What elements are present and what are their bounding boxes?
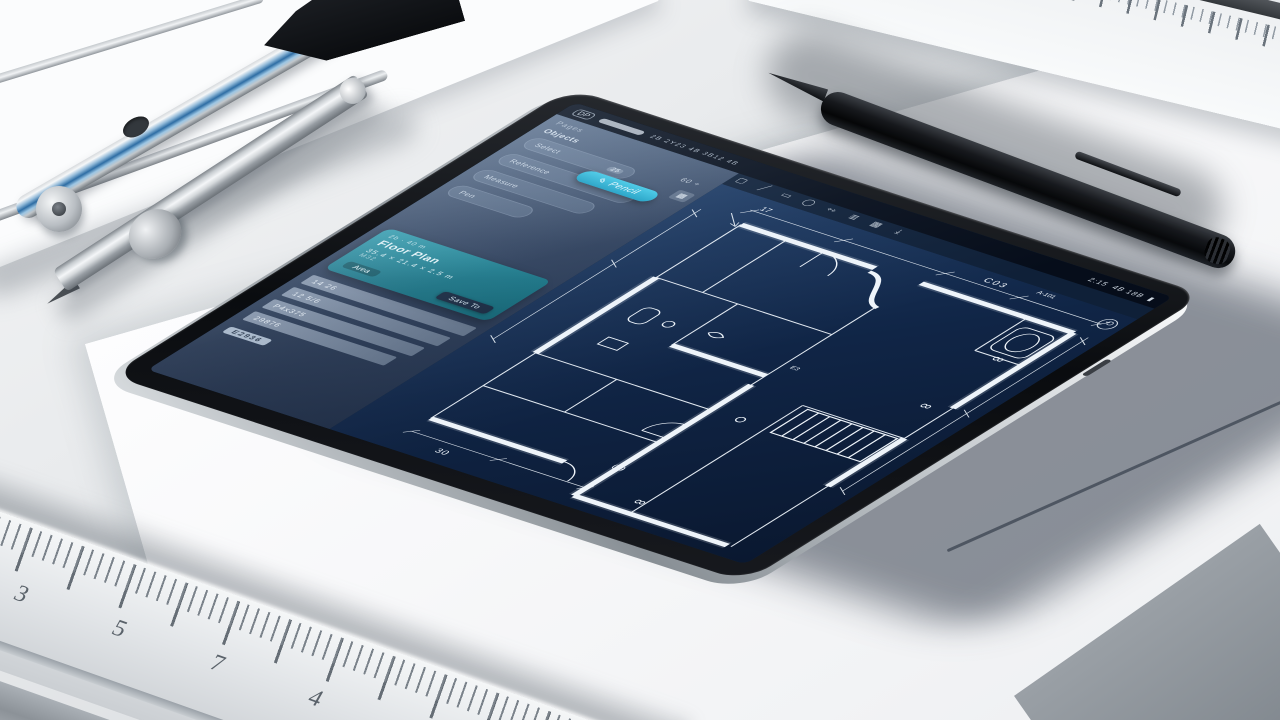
footer-chip[interactable]: E2936 [222, 326, 273, 345]
circle-icon[interactable]: ◯ [798, 198, 819, 208]
layers-icon[interactable]: ≣ [843, 213, 864, 223]
app-logo-badge[interactable]: DP [571, 108, 598, 120]
tool-label: Reference [507, 158, 553, 175]
select-icon[interactable]: ▢ [731, 176, 752, 186]
export-icon[interactable]: ⤓ [888, 227, 909, 237]
tool-label: Measure [482, 174, 522, 189]
battery-icon: ▮ [1145, 296, 1158, 302]
ruler-number: 5 [107, 616, 132, 644]
desk-scene: 3 5 7 4 DP 2 [0, 0, 1280, 720]
tool-label: Select [533, 142, 564, 154]
clock-text: 2:15 [1086, 276, 1112, 287]
grid-icon[interactable]: ▦ [865, 220, 886, 230]
ruler-number: 4 [303, 685, 328, 713]
grid-toggle-icon[interactable]: ▦ [667, 190, 696, 203]
ruler-number: 3 [9, 581, 34, 609]
rect-icon[interactable]: ▭ [775, 191, 796, 201]
compass-knob [36, 186, 82, 232]
tool-label: Pen [457, 189, 479, 199]
ruler-number: 7 [205, 650, 230, 678]
measure-icon[interactable]: ⇿ [820, 205, 841, 215]
line-icon[interactable]: ╱ [753, 183, 774, 193]
count-badge: 25 [606, 166, 626, 174]
